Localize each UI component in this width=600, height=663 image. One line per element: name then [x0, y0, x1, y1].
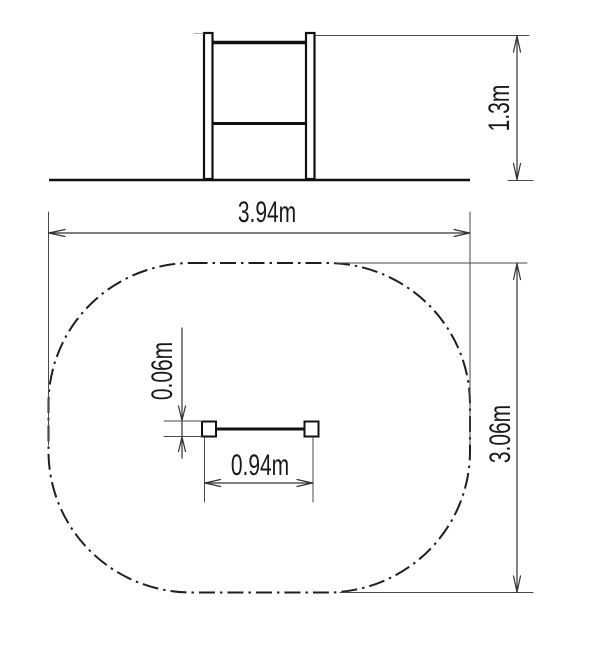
plan-view — [49, 263, 471, 593]
left-post-section — [202, 422, 216, 437]
dim-zone-height-label: 3.06m — [486, 405, 516, 463]
right-post — [306, 33, 315, 179]
right-post-section — [305, 422, 319, 437]
dim-zone-width-label: 3.94m — [238, 198, 296, 228]
dim-bar-length-label: 0.94m — [231, 451, 289, 481]
left-post — [204, 33, 213, 179]
dim-zone-width-lines — [49, 212, 471, 445]
technical-drawing: 1.3m 3.94m 3.06m 0.06m 0.94m — [0, 0, 600, 663]
front-view — [49, 33, 470, 180]
dim-front-height-label: 1.3m — [485, 85, 515, 132]
dim-post-thickness-label: 0.06m — [148, 342, 178, 400]
